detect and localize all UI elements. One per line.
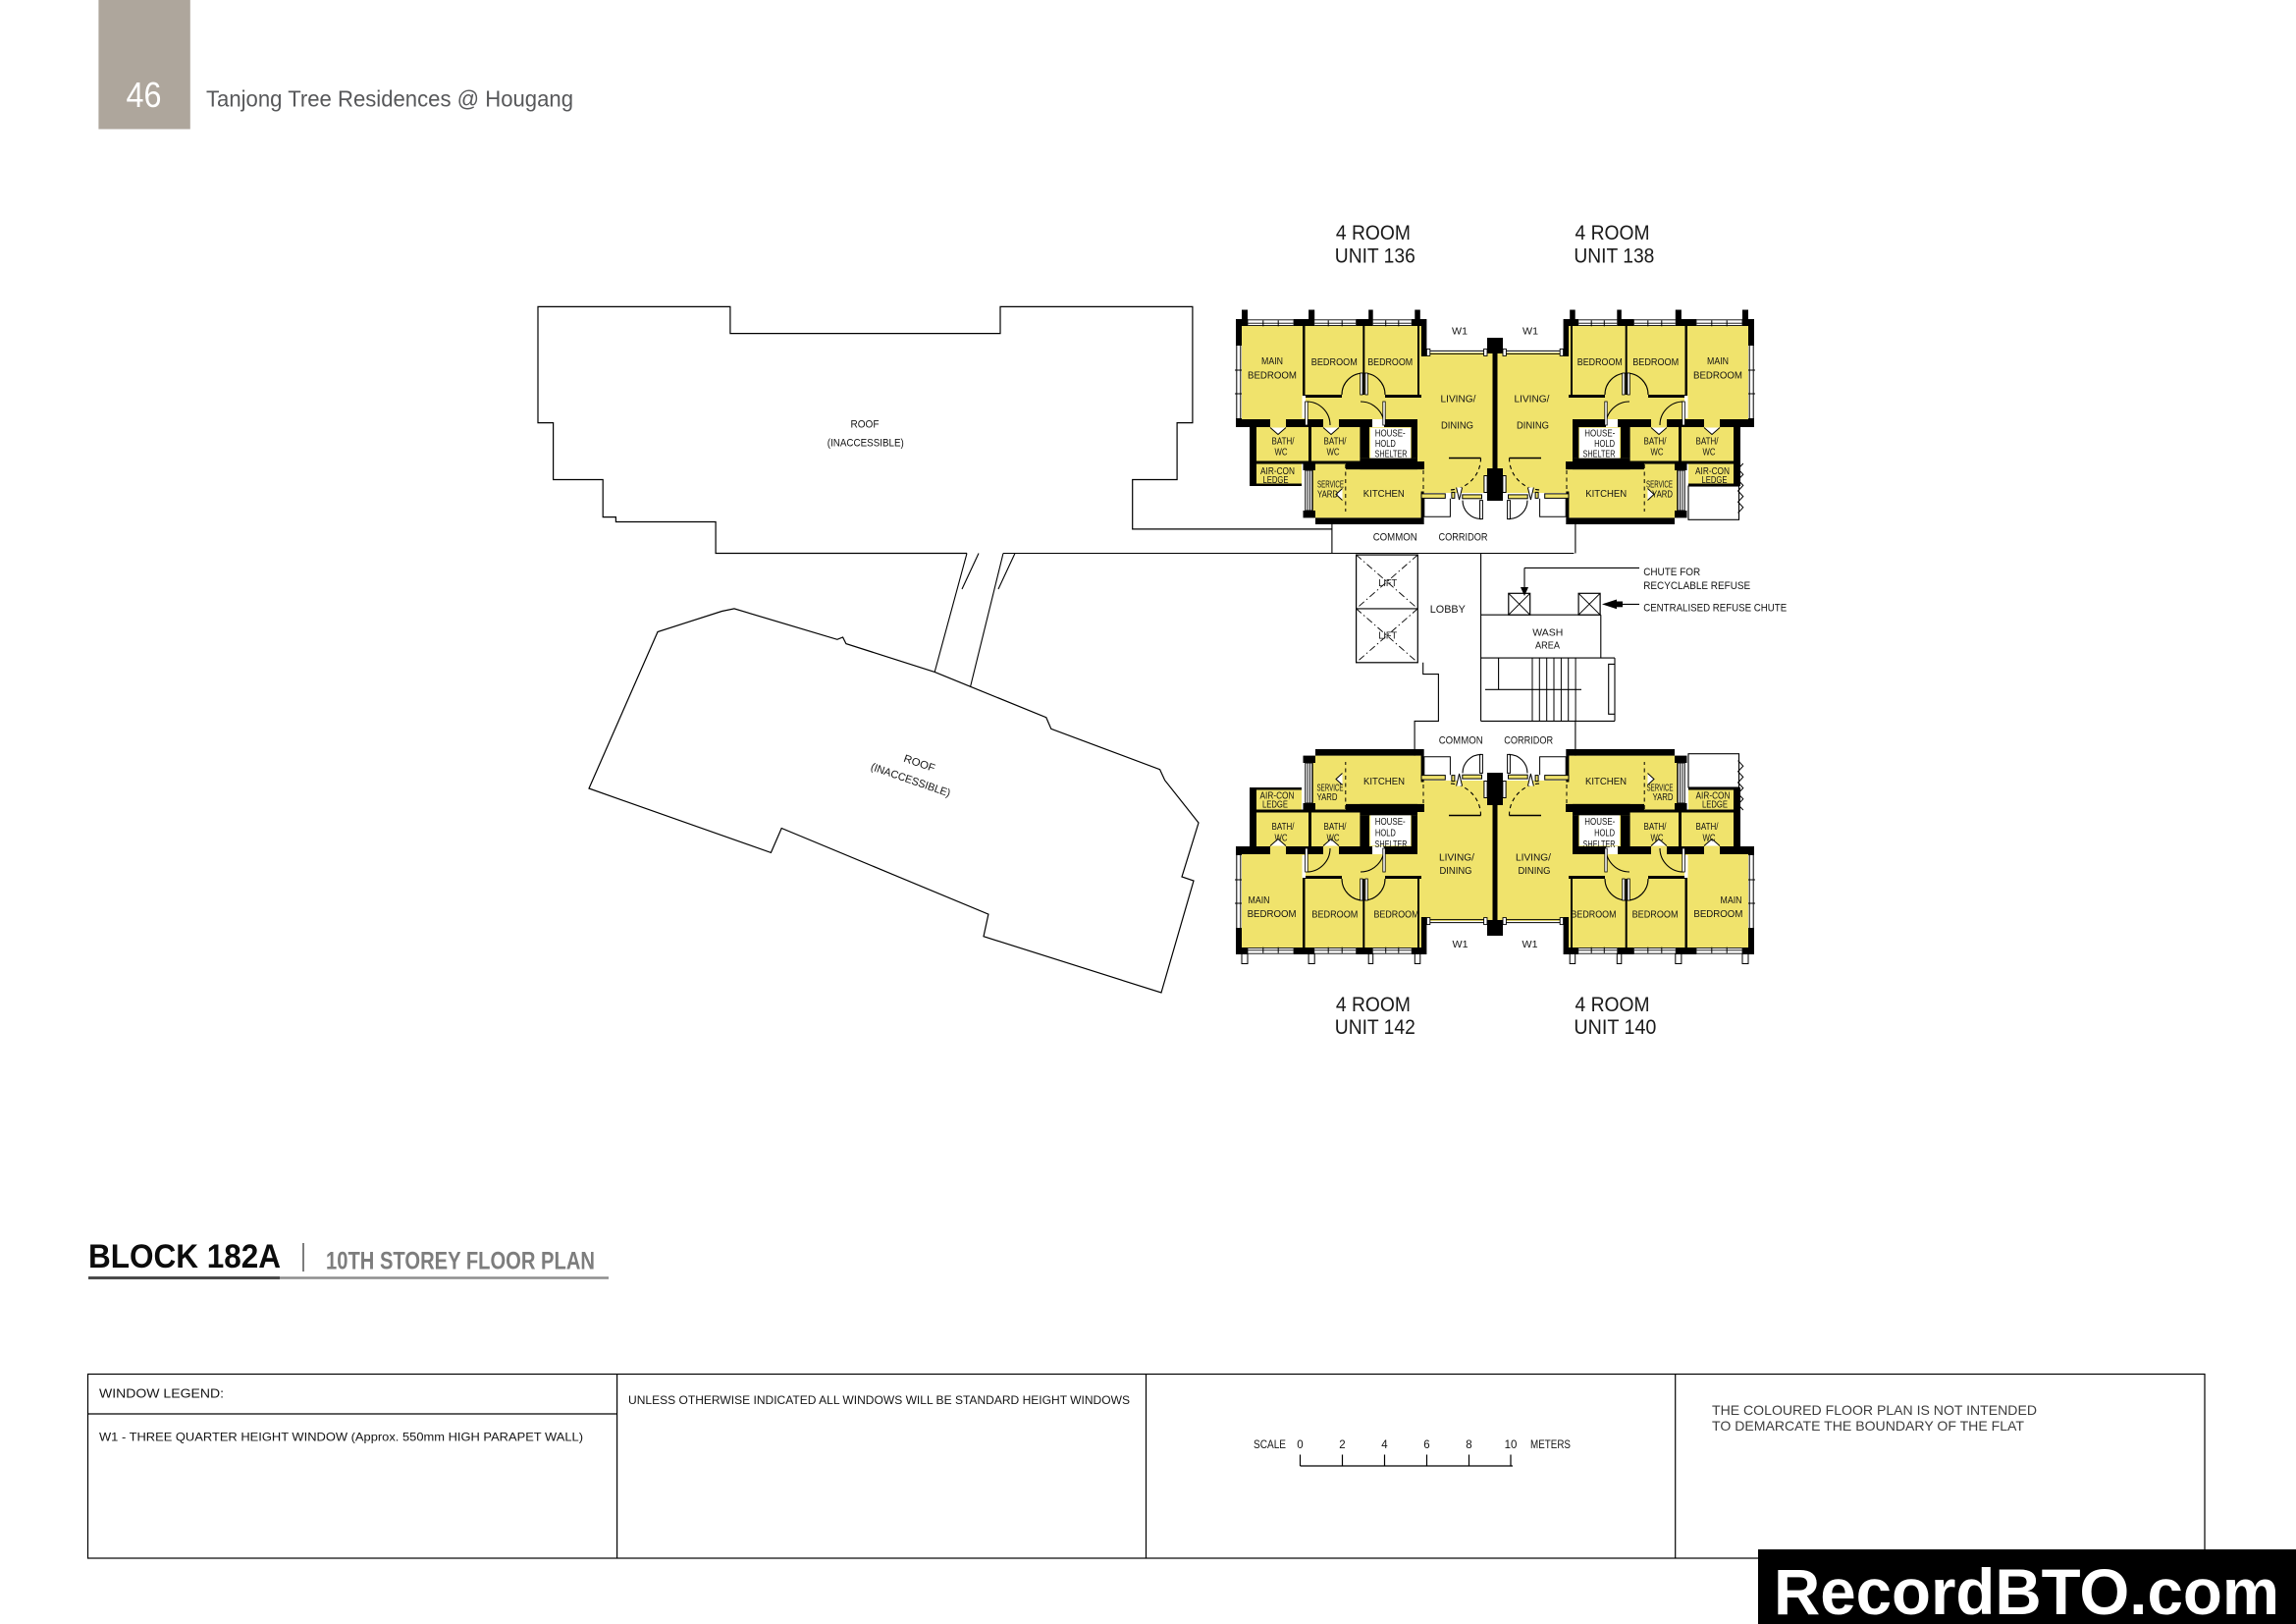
svg-text:BEDROOM: BEDROOM [1577, 356, 1623, 368]
svg-text:ROOF: ROOF [851, 419, 880, 431]
svg-text:CHUTE FOR: CHUTE FOR [1643, 567, 1700, 578]
svg-text:BEDROOM: BEDROOM [1311, 356, 1358, 368]
svg-text:LEDGE: LEDGE [1263, 474, 1289, 486]
svg-text:RecordBTO.com: RecordBTO.com [1774, 1555, 2279, 1624]
svg-text:10: 10 [1505, 1439, 1518, 1451]
svg-text:MAIN: MAIN [1707, 355, 1729, 367]
svg-text:MAIN: MAIN [1249, 894, 1270, 906]
svg-text:WC: WC [1703, 832, 1716, 843]
svg-text:6: 6 [1423, 1439, 1429, 1451]
svg-text:BEDROOM: BEDROOM [1632, 909, 1679, 921]
svg-text:W1: W1 [1522, 325, 1538, 337]
svg-text:BEDROOM: BEDROOM [1693, 369, 1742, 381]
svg-text:HOLD: HOLD [1594, 827, 1615, 839]
svg-text:CORRIDOR: CORRIDOR [1504, 735, 1553, 747]
svg-text:UNIT 140: UNIT 140 [1574, 1015, 1656, 1039]
svg-text:4 ROOM: 4 ROOM [1575, 221, 1650, 244]
svg-text:KITCHEN: KITCHEN [1363, 776, 1405, 787]
svg-text:UNIT 138: UNIT 138 [1574, 244, 1654, 268]
svg-text:AREA: AREA [1535, 639, 1560, 651]
svg-text:LIFT: LIFT [1378, 577, 1398, 589]
svg-text:W1: W1 [1522, 939, 1538, 950]
svg-text:LIVING/: LIVING/ [1439, 851, 1474, 863]
svg-text:2: 2 [1339, 1439, 1345, 1451]
svg-text:BATH/: BATH/ [1644, 821, 1667, 833]
svg-text:TO DEMARCATE THE BOUNDARY OF T: TO DEMARCATE THE BOUNDARY OF THE FLAT [1712, 1418, 2024, 1434]
svg-text:DINING: DINING [1440, 865, 1472, 877]
svg-text:THE COLOURED FLOOR PLAN IS NOT: THE COLOURED FLOOR PLAN IS NOT INTENDED [1712, 1402, 2037, 1418]
svg-text:LIVING/: LIVING/ [1441, 393, 1476, 405]
svg-text:SHELTER: SHELTER [1375, 448, 1408, 460]
svg-text:MAIN: MAIN [1721, 894, 1742, 906]
svg-text:LOBBY: LOBBY [1430, 604, 1467, 616]
svg-text:BATH/: BATH/ [1272, 821, 1295, 833]
svg-text:0: 0 [1297, 1439, 1303, 1451]
svg-text:LEDGE: LEDGE [1262, 798, 1288, 810]
svg-text:BEDROOM: BEDROOM [1248, 908, 1297, 920]
svg-text:CORRIDOR: CORRIDOR [1439, 532, 1488, 544]
svg-text:4: 4 [1381, 1439, 1388, 1451]
svg-text:4 ROOM: 4 ROOM [1575, 993, 1650, 1016]
svg-text:BATH/: BATH/ [1324, 821, 1347, 833]
svg-text:KITCHEN: KITCHEN [1585, 488, 1627, 500]
svg-text:WC: WC [1651, 446, 1664, 458]
svg-text:WASH: WASH [1532, 626, 1563, 638]
svg-text:46: 46 [127, 75, 162, 115]
svg-text:LIVING/: LIVING/ [1516, 851, 1551, 863]
svg-text:YARD: YARD [1317, 488, 1338, 500]
svg-text:BEDROOM: BEDROOM [1374, 909, 1419, 921]
svg-text:10TH STOREY FLOOR PLAN: 10TH STOREY FLOOR PLAN [326, 1248, 595, 1275]
svg-text:WINDOW LEGEND:: WINDOW LEGEND: [99, 1387, 224, 1401]
svg-text:LEDGE: LEDGE [1702, 474, 1728, 486]
svg-text:RECYCLABLE REFUSE: RECYCLABLE REFUSE [1643, 580, 1750, 592]
svg-text:CENTRALISED REFUSE CHUTE: CENTRALISED REFUSE CHUTE [1643, 602, 1787, 614]
svg-text:LIVING/: LIVING/ [1515, 393, 1550, 405]
svg-text:KITCHEN: KITCHEN [1363, 488, 1405, 500]
svg-text:4 ROOM: 4 ROOM [1336, 221, 1411, 244]
svg-text:8: 8 [1466, 1439, 1471, 1451]
svg-text:WC: WC [1327, 446, 1340, 458]
svg-text:YARD: YARD [1653, 791, 1674, 803]
svg-text:HOUSE-: HOUSE- [1375, 816, 1406, 828]
svg-text:SHELTER: SHELTER [1375, 839, 1408, 850]
svg-text:UNIT 136: UNIT 136 [1335, 244, 1415, 268]
svg-text:UNIT 142: UNIT 142 [1335, 1015, 1415, 1039]
svg-text:COMMON: COMMON [1373, 532, 1417, 544]
svg-text:4 ROOM: 4 ROOM [1336, 993, 1411, 1016]
svg-text:BLOCK 182A: BLOCK 182A [88, 1238, 281, 1275]
svg-text:BEDROOM: BEDROOM [1367, 356, 1413, 368]
svg-text:KITCHEN: KITCHEN [1585, 776, 1627, 787]
svg-text:BEDROOM: BEDROOM [1632, 356, 1679, 368]
svg-text:HOLD: HOLD [1375, 827, 1396, 839]
svg-text:BEDROOM: BEDROOM [1693, 908, 1742, 920]
svg-text:WC: WC [1327, 832, 1340, 843]
svg-text:W1 - THREE QUARTER HEIGHT WIND: W1 - THREE QUARTER HEIGHT WINDOW (Approx… [99, 1430, 583, 1443]
svg-text:Tanjong Tree Residences @ Houg: Tanjong Tree Residences @ Hougang [206, 85, 573, 111]
svg-text:WC: WC [1275, 446, 1288, 458]
svg-text:UNLESS OTHERWISE INDICATED ALL: UNLESS OTHERWISE INDICATED ALL WINDOWS W… [628, 1393, 1130, 1407]
svg-text:W1: W1 [1452, 325, 1468, 337]
svg-text:BATH/: BATH/ [1696, 821, 1719, 833]
svg-text:METERS: METERS [1530, 1439, 1571, 1451]
svg-text:LEDGE: LEDGE [1702, 798, 1728, 810]
svg-text:YARD: YARD [1652, 488, 1673, 500]
svg-text:DINING: DINING [1441, 419, 1473, 431]
svg-text:(INACCESSIBLE): (INACCESSIBLE) [828, 438, 904, 450]
svg-text:SCALE: SCALE [1254, 1439, 1286, 1451]
svg-text:BEDROOM: BEDROOM [1311, 909, 1358, 921]
svg-text:LIFT: LIFT [1378, 629, 1398, 641]
svg-text:WC: WC [1703, 446, 1716, 458]
svg-text:YARD: YARD [1317, 791, 1338, 803]
svg-text:W1: W1 [1453, 939, 1468, 950]
svg-text:HOUSE-: HOUSE- [1584, 816, 1615, 828]
svg-text:DINING: DINING [1519, 865, 1551, 877]
svg-text:BEDROOM: BEDROOM [1572, 909, 1617, 921]
svg-text:BEDROOM: BEDROOM [1248, 369, 1297, 381]
svg-text:DINING: DINING [1517, 419, 1549, 431]
svg-text:WC: WC [1651, 832, 1664, 843]
svg-text:SHELTER: SHELTER [1583, 839, 1616, 850]
svg-text:COMMON: COMMON [1439, 735, 1483, 747]
svg-text:WC: WC [1275, 832, 1288, 843]
svg-text:SHELTER: SHELTER [1583, 448, 1616, 460]
svg-text:MAIN: MAIN [1261, 355, 1283, 367]
